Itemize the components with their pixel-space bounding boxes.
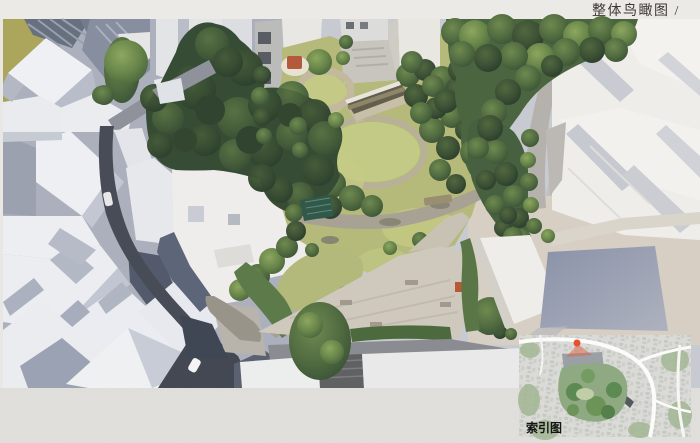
svg-text:索引图: 索引图 (526, 420, 562, 435)
svg-text:整体鸟瞰图 /: 整体鸟瞰图 / (592, 3, 680, 19)
